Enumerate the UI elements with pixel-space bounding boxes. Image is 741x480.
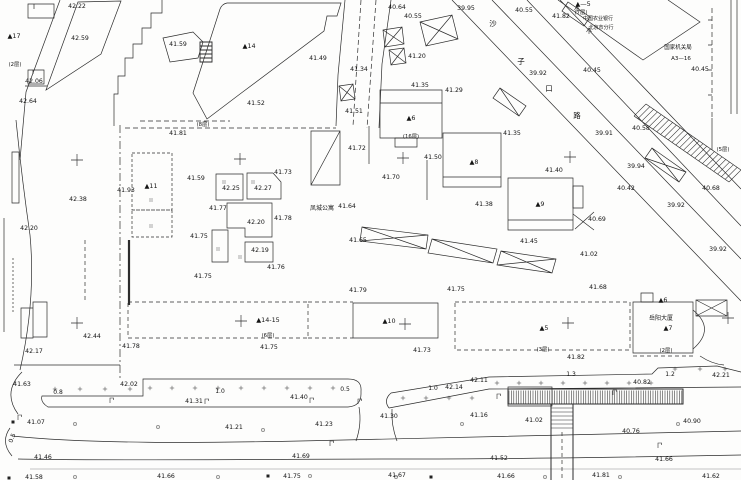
survey-cross <box>71 154 83 166</box>
spot-elevation: 41.34 <box>350 66 368 73</box>
width-dimension-label: 0.5 <box>340 386 350 393</box>
building-number-label: ▲6 <box>407 114 416 122</box>
tree-icon <box>263 430 264 431</box>
tree-icon <box>75 477 76 478</box>
slope-hatch <box>664 125 676 137</box>
curb-tick-icon <box>193 386 197 390</box>
spot-elevation: 41.40 <box>545 167 563 174</box>
building-number-label: ▲6 <box>659 296 668 304</box>
building-outline <box>420 15 458 46</box>
slope-hatch <box>676 133 688 145</box>
building-number-label: ▲—5 <box>575 0 590 8</box>
spot-elevation: 41.07 <box>27 419 45 426</box>
tree-icon <box>678 424 679 425</box>
spot-elevation: 41.81 <box>169 130 187 137</box>
tree-icon <box>158 427 159 428</box>
spot-elevation: 40.45 <box>583 67 601 74</box>
curb-tick-icon <box>424 396 428 400</box>
spot-elevation: 42.21 <box>712 372 730 379</box>
map-stage: 42.2242.5941.5942.0642.6440.6440.5539.95… <box>0 0 741 480</box>
spot-elevation: 41.59 <box>187 175 205 182</box>
floor-count-label: (8层) <box>197 121 210 128</box>
spot-elevation: 41.73 <box>274 169 292 176</box>
curb-tick-icon <box>401 396 405 400</box>
floor-count-label: (2层) <box>9 61 22 68</box>
lamp-post-icon <box>18 415 22 420</box>
floor-count-label: (16层) <box>403 133 419 140</box>
tree-icon <box>462 424 463 425</box>
spot-elevation: 41.40 <box>290 394 308 401</box>
curb-tick-icon <box>262 386 266 390</box>
survey-cross <box>71 317 83 329</box>
width-dimension-label: 1.0 <box>428 385 438 392</box>
floor-count-label: (6层) <box>262 332 275 339</box>
building-number-label: ▲14-15 <box>256 316 279 324</box>
spot-elevation: 41.67 <box>388 472 406 479</box>
name-annotation: 凤城公寓 <box>310 204 334 212</box>
curb-tick-icon <box>627 381 631 385</box>
symbol-layer <box>8 6 735 480</box>
spot-elevation: 41.66 <box>655 456 673 463</box>
curb-return <box>700 356 724 365</box>
parcel-boundary <box>558 0 700 60</box>
spot-elevation: 42.19 <box>251 247 269 254</box>
spot-elevation: 41.82 <box>567 354 585 361</box>
tree-icon <box>218 477 219 478</box>
spot-elevation: 40.64 <box>388 4 406 11</box>
road-edge <box>379 0 391 128</box>
boundary-ticks <box>708 20 712 95</box>
spot-elevation: 41.38 <box>475 201 493 208</box>
name-annotation: 国家机关局 <box>664 43 692 51</box>
spot-elevation: 40.45 <box>691 66 709 73</box>
spot-elevation: 39.92 <box>709 246 727 253</box>
building-number-label: ▲9 <box>536 200 545 208</box>
spot-elevation: 41.45 <box>520 238 538 245</box>
slope-hatch <box>653 117 665 129</box>
tree-icon <box>75 424 76 425</box>
curb-tick-icon <box>170 386 174 390</box>
spot-elevation: 41.20 <box>408 53 426 60</box>
spot-elevation: 41.75 <box>190 233 208 240</box>
spot-elevation: 41.65 <box>349 237 367 244</box>
spot-elevation: 40.90 <box>683 418 701 425</box>
slope-hatch <box>672 130 684 142</box>
slope-hatch <box>661 122 673 134</box>
building-outline <box>28 4 54 18</box>
slope-hatch <box>657 120 669 132</box>
spot-elevation: 40.55 <box>404 13 422 20</box>
spot-elevation: 41.75 <box>283 473 301 480</box>
building-outline <box>641 293 653 302</box>
building-outline <box>311 131 340 185</box>
spot-elevation: 40.82 <box>633 379 651 386</box>
parcel-outline <box>46 1 121 90</box>
building-outline <box>573 186 583 208</box>
spot-elevation: 42.38 <box>69 196 87 203</box>
survey-cross <box>562 317 574 329</box>
survey-cross <box>397 152 409 164</box>
spot-elevation: 41.72 <box>348 145 366 152</box>
shed-outline <box>497 251 556 273</box>
width-dimension-label: 0.8 <box>53 389 63 396</box>
spot-elevation: 42.02 <box>120 381 138 388</box>
curb-tick-icon <box>78 387 82 391</box>
building-number-label: ▲14 <box>242 42 255 50</box>
spot-elevation: 41.68 <box>589 284 607 291</box>
curb-tick-icon <box>539 381 543 385</box>
curb-tick-icon <box>285 386 289 390</box>
slope-hatch <box>714 159 726 171</box>
spot-elevation: 41.02 <box>580 251 598 258</box>
spot-elevation: 40.58 <box>632 125 650 132</box>
monument-icon <box>12 421 15 424</box>
building-outline <box>21 302 47 338</box>
parcel-boundary <box>114 0 162 126</box>
monument-icon <box>430 476 433 479</box>
spot-elevation: 41.75 <box>260 344 278 351</box>
spot-elevation: 41.59 <box>169 41 187 48</box>
building-outline <box>645 148 686 182</box>
name-annotation: 中国农业银行 <box>583 15 613 22</box>
storey-tick-icon <box>223 180 225 184</box>
slope-hatch <box>729 170 741 182</box>
spot-elevation: 42.59 <box>71 35 89 42</box>
slope-hatch <box>702 152 714 164</box>
shed-outline <box>428 239 497 263</box>
culvert-symbol <box>389 48 406 65</box>
spot-elevation: 41.02 <box>525 417 543 424</box>
survey-cross <box>235 315 247 327</box>
building-number-label: ▲17 <box>7 32 20 40</box>
width-dimension-label: 1.2 <box>665 371 675 378</box>
footbridge-outline <box>508 387 552 406</box>
spot-elevation: 41.75 <box>447 286 465 293</box>
tree-icon <box>620 477 621 478</box>
spot-elevation: 41.46 <box>34 454 52 461</box>
spot-elevation: 40.76 <box>622 428 640 435</box>
slope-hatch <box>683 138 695 150</box>
lamp-post-icon <box>110 398 114 403</box>
spot-elevation: 41.64 <box>338 203 356 210</box>
spot-elevation: 41.66 <box>497 473 515 480</box>
curb-tick-icon <box>517 381 521 385</box>
spot-elevation: 41.66 <box>157 473 175 480</box>
spot-elevation: 42.27 <box>254 185 272 192</box>
spot-elevation: 41.77 <box>209 205 227 212</box>
spot-elevation: 41.50 <box>424 154 442 161</box>
spot-elevation: 41.49 <box>309 55 327 62</box>
building-outline <box>128 302 308 338</box>
spot-elevation: 42.17 <box>25 348 43 355</box>
spot-elevation: 41.63 <box>13 381 31 388</box>
name-annotation: 岳阳大厦 <box>649 314 673 322</box>
spot-elevation: 39.92 <box>529 70 547 77</box>
spot-elevation: 41.31 <box>185 398 203 405</box>
slope-hatch <box>645 112 657 124</box>
tree-icon <box>310 476 311 477</box>
spot-elevation: 41.81 <box>592 472 610 479</box>
spot-elevation: 41.76 <box>267 264 285 271</box>
spot-elevation: 41.51 <box>345 108 363 115</box>
culvert-symbol <box>339 84 355 101</box>
spot-elevation: 39.95 <box>457 5 475 12</box>
floor-count-label: (5层) <box>717 146 730 153</box>
building-outline <box>212 230 228 262</box>
survey-cross <box>234 153 246 165</box>
building-number-label: ▲10 <box>382 317 395 325</box>
floor-count-label: (2层) <box>660 347 673 354</box>
spot-elevation: 41.29 <box>445 87 463 94</box>
monument-icon <box>8 477 11 480</box>
storey-tick-icon <box>150 198 152 202</box>
road-edge <box>16 120 32 370</box>
spot-elevation: 42.14 <box>445 384 463 391</box>
curb-tick-icon <box>698 367 702 371</box>
spot-elevation: 41.21 <box>225 424 243 431</box>
spot-elevation: 42.64 <box>19 98 37 105</box>
road-edge <box>560 0 741 189</box>
spot-elevation: 41.35 <box>411 82 429 89</box>
monument-icon <box>267 475 270 478</box>
spot-elevation: 39.91 <box>595 130 613 137</box>
road-edge <box>336 0 345 126</box>
spot-elevation: 40.68 <box>702 185 720 192</box>
street-name-char: 子 <box>517 57 525 66</box>
slope-hatch <box>638 107 650 119</box>
spot-elevation: 41.79 <box>349 287 367 294</box>
width-dimension-label: 1.3 <box>566 371 576 378</box>
width-dimension-label: 1.0 <box>215 388 225 395</box>
curb-tick-icon <box>308 386 312 390</box>
slope-hatch <box>706 154 718 166</box>
slope-hatch <box>725 167 737 179</box>
building-number-label: ▲8 <box>470 158 479 166</box>
storey-tick-icon <box>239 255 241 259</box>
building-outline <box>696 300 727 316</box>
curb-tick-icon <box>605 381 609 385</box>
compound-boundary <box>308 302 353 338</box>
spot-elevation: 40.55 <box>515 7 533 14</box>
road-lane-line <box>527 0 741 226</box>
spot-elevation: 41.23 <box>315 421 333 428</box>
shed-outline <box>360 227 428 249</box>
spot-elevation: 42.06 <box>25 78 43 85</box>
spot-elevation: 41.75 <box>194 273 212 280</box>
slope-hatch <box>695 146 707 158</box>
spot-elevation: 42.20 <box>20 225 38 232</box>
spot-elevation: 41.73 <box>413 347 431 354</box>
slope-hatch <box>680 136 692 148</box>
name-annotation: A3—16 <box>671 56 691 62</box>
spot-elevation: 41.16 <box>470 412 488 419</box>
spot-elevation: 41.35 <box>503 130 521 137</box>
slope-hatch <box>649 115 661 127</box>
spot-elevation: 42.11 <box>470 377 488 384</box>
building-number-label: ▲5 <box>540 324 549 332</box>
curb-tick-icon <box>495 381 499 385</box>
slope-band-edge <box>634 104 741 182</box>
spot-elevation: 42.25 <box>222 185 240 192</box>
building-outline <box>12 152 19 203</box>
tree-icon <box>545 477 546 478</box>
spot-elevation: 41.52 <box>247 100 265 107</box>
curb-tick-icon <box>470 396 474 400</box>
survey-map-canvas: 42.2242.5941.5942.0642.6440.6440.5539.95… <box>0 0 741 480</box>
spot-elevation: 41.93 <box>117 187 135 194</box>
storey-tick-icon <box>252 180 254 184</box>
curb-tick-icon <box>561 381 565 385</box>
road-edge <box>18 455 741 460</box>
spot-elevation: 41.78 <box>274 215 292 222</box>
map-linework <box>4 0 741 480</box>
spot-elevation: 41.62 <box>702 473 720 480</box>
curb-tick-icon <box>583 381 587 385</box>
curb-tick-icon <box>239 386 243 390</box>
lamp-post-icon <box>310 398 314 403</box>
building-outline <box>493 88 526 116</box>
slope-hatch <box>687 141 699 153</box>
slope-hatch <box>718 162 730 174</box>
slope-hatch <box>668 128 680 140</box>
spot-elevation: 41.30 <box>380 413 398 420</box>
storey-tick-icon <box>217 247 219 251</box>
road-median <box>386 366 741 408</box>
width-dimension-label: 0.5 <box>8 432 18 444</box>
spot-elevation: 42.22 <box>68 3 86 10</box>
floor-count-label: (7层) <box>575 9 588 16</box>
spot-elevation: 40.69 <box>588 216 606 223</box>
curb-tick-icon <box>331 386 335 390</box>
slope-hatch <box>642 109 654 121</box>
spot-elevation: 41.69 <box>292 453 310 460</box>
survey-cross <box>399 318 411 330</box>
lamp-post-icon <box>497 394 501 399</box>
spot-elevation: 41.82 <box>552 13 570 20</box>
storey-tick-icon <box>150 224 152 228</box>
street-name-char: 路 <box>573 110 581 120</box>
floor-count-label: (3层) <box>537 346 550 353</box>
curb-tick-icon <box>103 387 107 391</box>
spot-elevation: 41.70 <box>382 174 400 181</box>
survey-cross <box>564 151 576 163</box>
spot-elevation: 39.92 <box>667 202 685 209</box>
curb-tick-icon <box>148 386 152 390</box>
building-number-label: ▲11 <box>144 182 157 190</box>
slope-hatch <box>691 144 703 156</box>
road-edge <box>731 0 737 114</box>
spot-elevation: 41.58 <box>25 474 43 480</box>
curb-return <box>11 372 22 414</box>
building-number-label: ▲7 <box>664 324 673 332</box>
survey-cross <box>722 312 734 324</box>
spot-elevation: 41.78 <box>122 343 140 350</box>
spot-elevation: 42.44 <box>83 333 101 340</box>
road-centerline <box>367 0 376 128</box>
spot-elevation: 42.20 <box>247 219 265 226</box>
name-annotation: 北京市分行 <box>588 24 613 31</box>
lamp-post-icon <box>205 399 209 404</box>
spot-elevation: 41.52 <box>490 455 508 462</box>
slope-hatch <box>634 104 646 116</box>
street-name-char: 口 <box>545 84 553 93</box>
spot-elevation: 39.94 <box>627 163 645 170</box>
curb-return <box>356 407 360 441</box>
lamp-post-icon <box>658 443 662 448</box>
street-name-char: 沙 <box>489 19 497 28</box>
spot-elevation: 40.42 <box>617 185 635 192</box>
lamp-post-icon <box>330 441 334 446</box>
